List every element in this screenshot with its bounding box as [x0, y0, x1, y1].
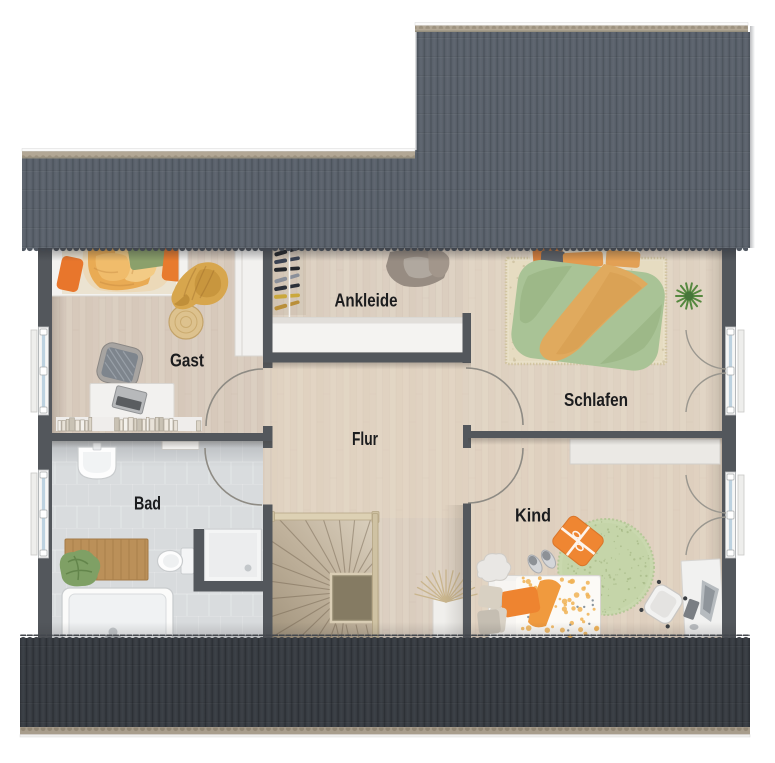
svg-text:Schlafen: Schlafen [564, 390, 628, 410]
svg-text:Kind: Kind [515, 506, 551, 526]
svg-text:Gast: Gast [170, 351, 204, 371]
svg-text:Ankleide: Ankleide [335, 291, 398, 311]
svg-text:Bad: Bad [134, 494, 161, 514]
svg-text:Flur: Flur [352, 429, 378, 449]
